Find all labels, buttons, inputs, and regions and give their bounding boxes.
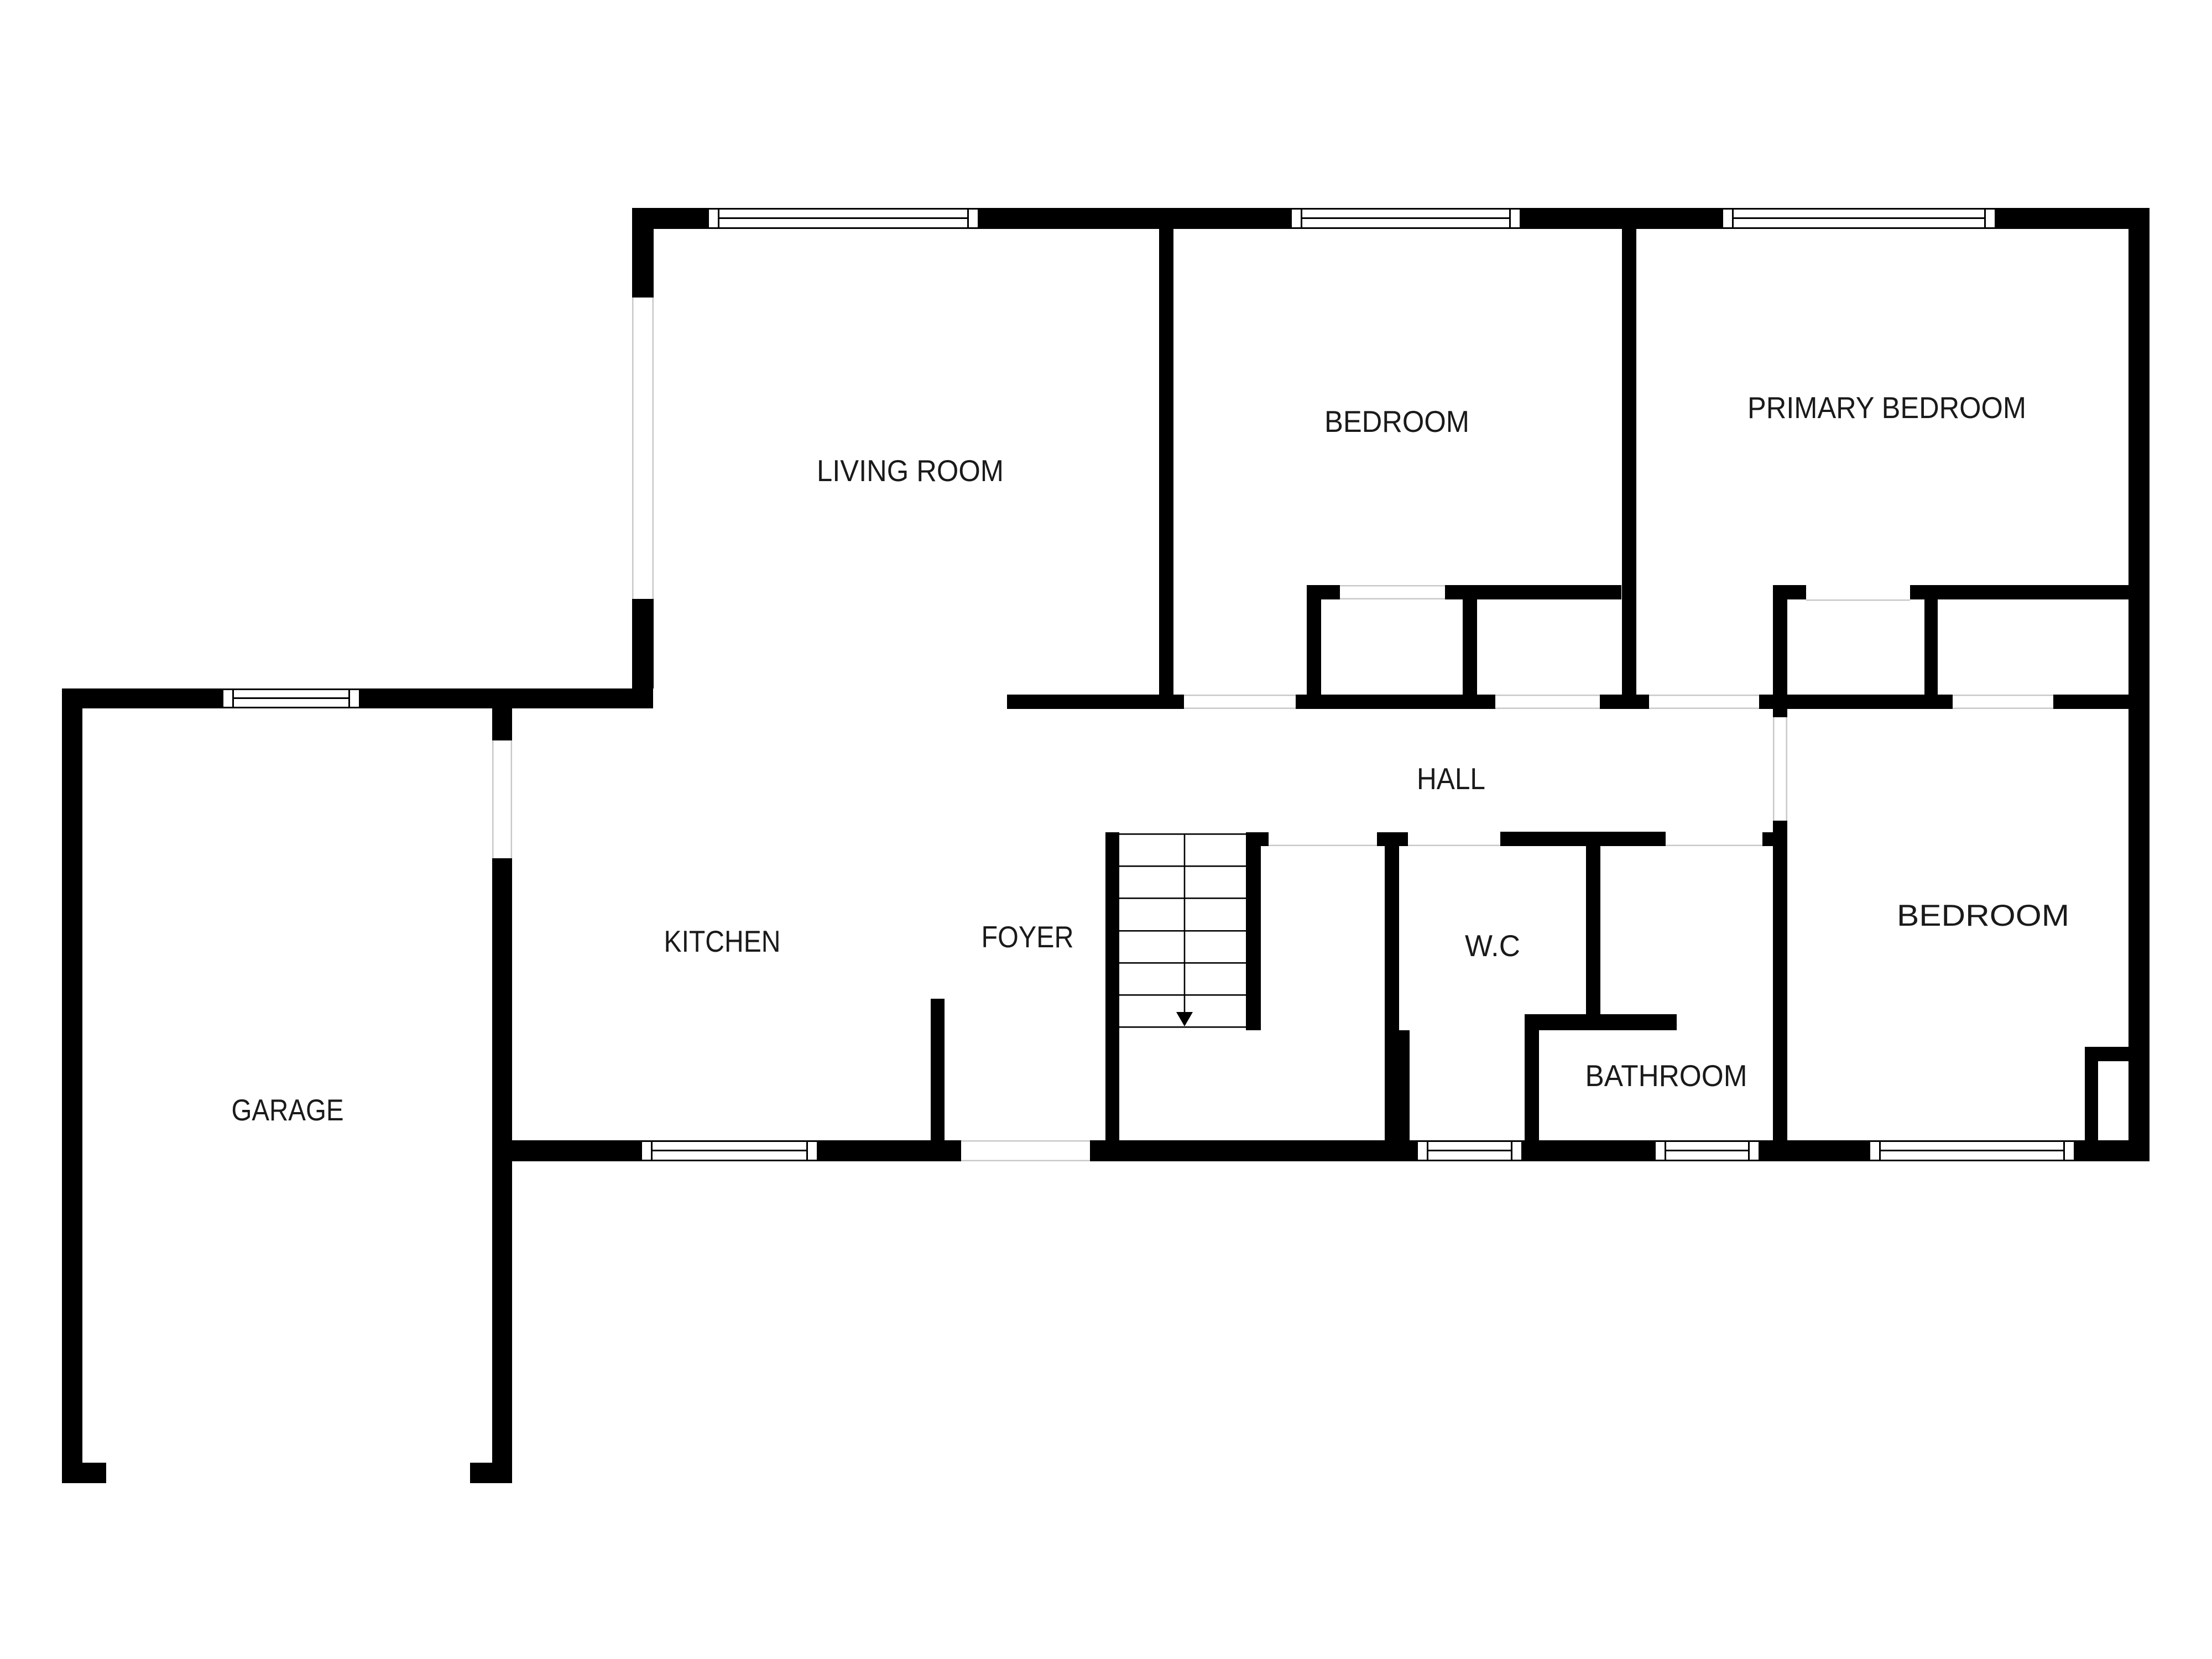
svg-text:W.C: W.C — [1465, 928, 1520, 963]
svg-text:GARAGE: GARAGE — [232, 1093, 344, 1127]
svg-text:PRIMARY BEDROOM: PRIMARY BEDROOM — [1747, 390, 2026, 425]
svg-text:HALL: HALL — [1417, 761, 1485, 796]
svg-text:BEDROOM: BEDROOM — [1897, 898, 2069, 932]
svg-text:BATHROOM: BATHROOM — [1585, 1058, 1747, 1093]
svg-text:KITCHEN: KITCHEN — [664, 924, 781, 958]
svg-text:BEDROOM: BEDROOM — [1324, 404, 1469, 439]
svg-text:LIVING ROOM: LIVING ROOM — [817, 453, 1004, 488]
svg-text:FOYER: FOYER — [982, 920, 1074, 954]
